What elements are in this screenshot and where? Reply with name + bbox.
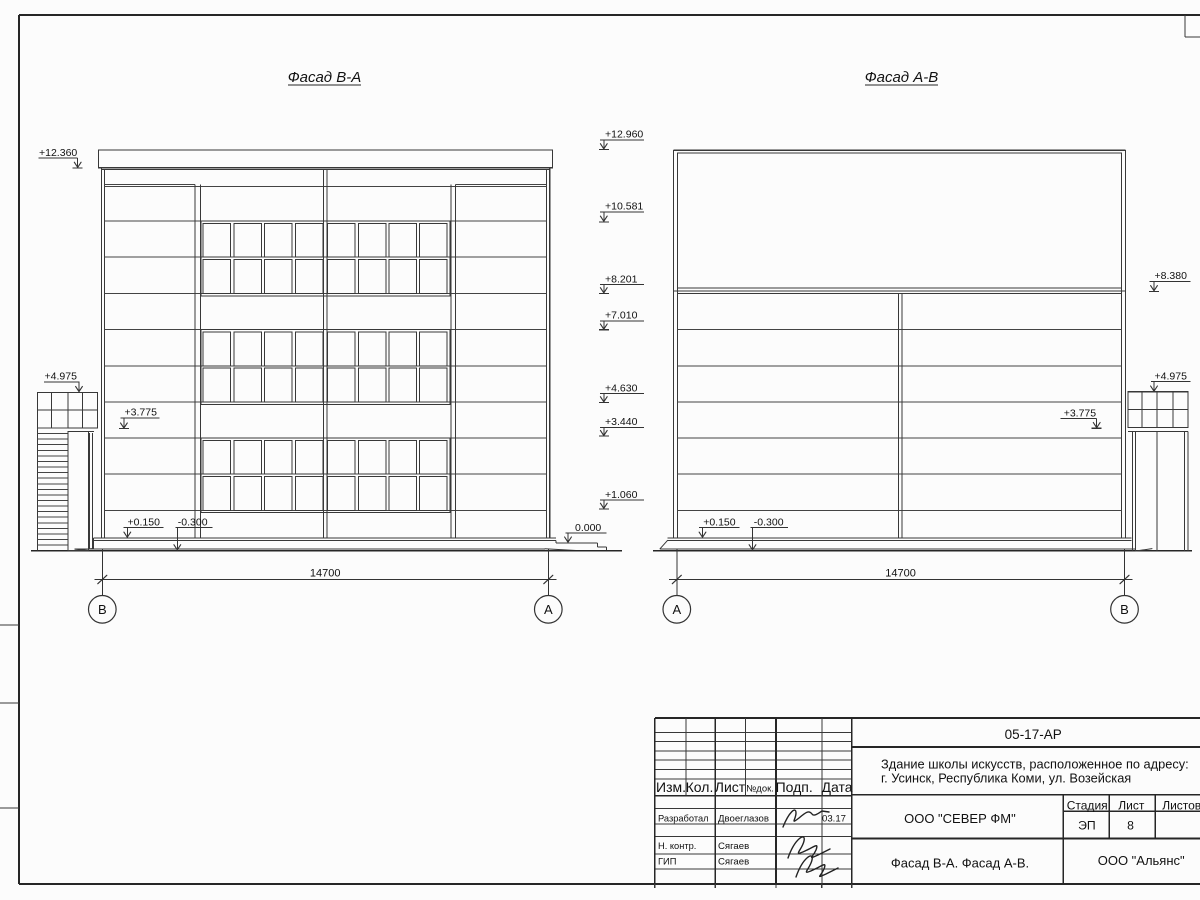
- svg-text:Фасад А-В: Фасад А-В: [865, 69, 939, 86]
- svg-text:+0.150: +0.150: [128, 516, 161, 528]
- svg-text:ГИП: ГИП: [658, 857, 676, 867]
- svg-text:ООО "Альянс": ООО "Альянс": [1098, 853, 1185, 868]
- svg-text:А: А: [544, 602, 553, 617]
- svg-text:Сягаев: Сягаев: [718, 857, 749, 868]
- svg-text:+10.581: +10.581: [605, 201, 643, 213]
- svg-text:+4.975: +4.975: [1155, 370, 1188, 382]
- svg-text:Кол.: Кол.: [686, 779, 714, 795]
- svg-text:+3.440: +3.440: [605, 416, 638, 428]
- svg-text:+0.150: +0.150: [703, 516, 736, 528]
- svg-text:0.000: 0.000: [575, 522, 601, 534]
- svg-text:Дата: Дата: [821, 779, 852, 795]
- svg-text:Двоеглазов: Двоеглазов: [718, 814, 769, 825]
- svg-text:В: В: [98, 602, 107, 617]
- svg-text:Разработал: Разработал: [658, 814, 709, 824]
- svg-text:14700: 14700: [310, 568, 341, 580]
- svg-text:Подп.: Подп.: [776, 779, 813, 795]
- svg-text:+1.060: +1.060: [605, 489, 638, 501]
- svg-text:03.17: 03.17: [822, 814, 846, 825]
- svg-text:-0.300: -0.300: [178, 516, 208, 528]
- svg-text:+8.201: +8.201: [605, 273, 638, 285]
- svg-text:ЭП: ЭП: [1078, 818, 1096, 832]
- svg-text:+4.630: +4.630: [605, 382, 638, 394]
- svg-text:05-17-АР: 05-17-АР: [1005, 727, 1062, 742]
- svg-text:+3.775: +3.775: [1064, 407, 1097, 419]
- svg-text:Н. контр.: Н. контр.: [658, 841, 696, 851]
- svg-text:Изм.: Изм.: [656, 779, 686, 795]
- svg-text:+12.960: +12.960: [605, 129, 643, 141]
- svg-text:14700: 14700: [885, 568, 916, 580]
- svg-text:+7.010: +7.010: [605, 310, 638, 322]
- svg-text:8: 8: [1127, 818, 1134, 832]
- svg-text:В: В: [1120, 602, 1129, 617]
- svg-text:Сягаев: Сягаев: [718, 841, 749, 852]
- svg-text:Листов: Листов: [1162, 798, 1200, 812]
- svg-text:+3.775: +3.775: [125, 407, 158, 419]
- svg-text:ООО "СЕВЕР ФМ": ООО "СЕВЕР ФМ": [904, 811, 1016, 826]
- svg-text:+4.975: +4.975: [45, 371, 78, 383]
- svg-text:+12.360: +12.360: [39, 147, 77, 159]
- svg-text:г. Усинск, Республика Коми, ул: г. Усинск, Республика Коми, ул. Возейска…: [881, 770, 1131, 785]
- svg-text:Фасад В-А. Фасад А-В.: Фасад В-А. Фасад А-В.: [891, 856, 1029, 871]
- svg-text:Фасад В-А: Фасад В-А: [288, 69, 362, 86]
- svg-text:Стадия: Стадия: [1067, 798, 1108, 812]
- svg-text:А: А: [672, 602, 681, 617]
- svg-text:+8.380: +8.380: [1155, 270, 1188, 282]
- svg-text:Лист: Лист: [1118, 798, 1145, 812]
- svg-text:№док.: №док.: [746, 784, 774, 795]
- svg-text:Лист: Лист: [715, 779, 746, 795]
- svg-text:-0.300: -0.300: [754, 516, 784, 528]
